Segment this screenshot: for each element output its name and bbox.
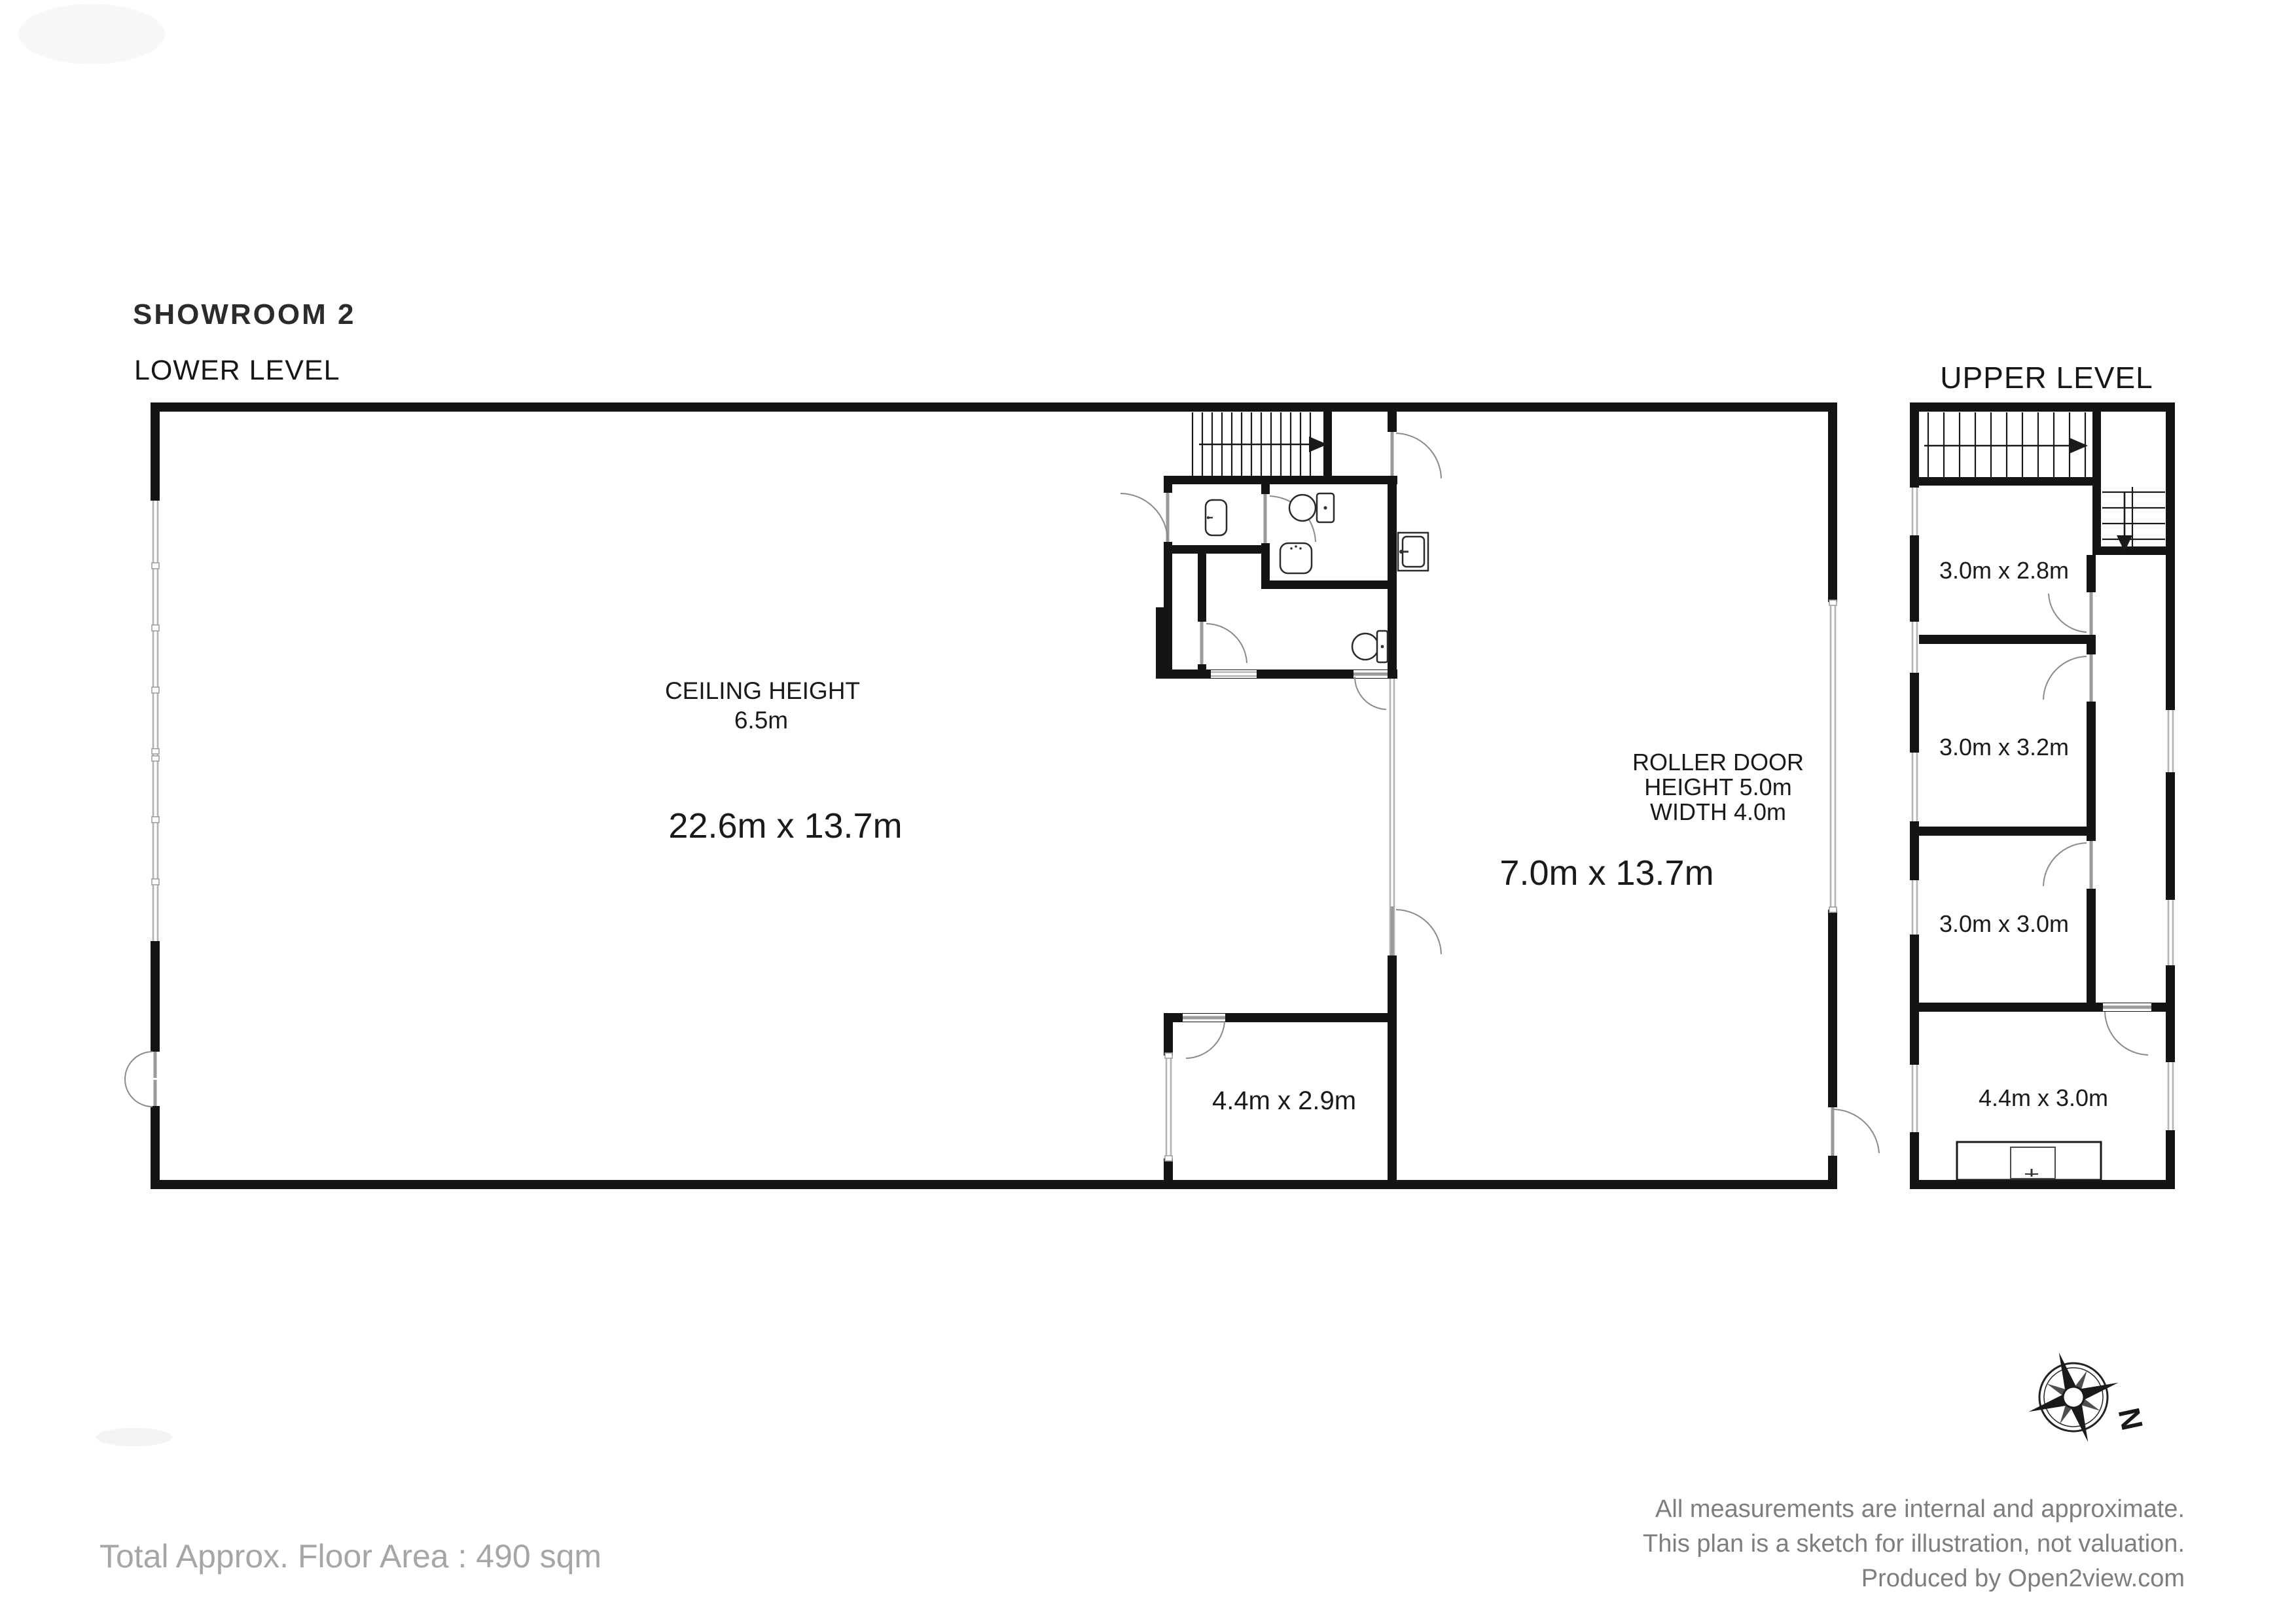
lower-level-label: LOWER LEVEL [134,355,340,386]
wall-sink-icon [1398,533,1428,571]
upper-outer-walls [1910,402,2175,1189]
floor-plan-sheet: SHOWROOM 2 LOWER LEVEL UPPER LEVEL [0,0,2296,1623]
ceiling-height-label: CEILING HEIGHT [665,677,860,704]
faded-logo-blob [18,4,165,64]
amenities-block [1121,484,1428,709]
upper-windows [1910,488,2174,1132]
upper-level-label: UPPER LEVEL [1940,361,2153,395]
bay-dimensions: 7.0m x 13.7m [1499,853,1713,893]
lower-staircase [1164,411,1397,484]
toilet-icon [1289,493,1334,522]
compass-icon: N [2014,1338,2149,1456]
stair-down-arrow [2117,492,2132,552]
lower-outer-walls [151,402,1837,1189]
lower-level-plan: CEILING HEIGHT 6.5m 22.6m x 13.7m ROLLER… [125,402,1879,1189]
dividing-wall [1388,411,1441,1180]
stair-direction-arrow [1199,437,1327,452]
disclaimer-line-3: Produced by Open2view.com [1861,1565,2185,1592]
faded-smudge [96,1428,172,1446]
upper-level-plan: 3.0m x 2.8m 3.0m x 3.2m 3.0m x 3.0m 4.4m… [1910,402,2175,1189]
lower-left-window [151,501,159,941]
disclaimer-line-2: This plan is a sketch for illustration, … [1643,1530,2185,1558]
stair-treads [1928,412,2085,477]
basin-icon [1206,500,1227,535]
lower-double-door [125,1052,155,1107]
disclaimer-line-1: All measurements are internal and approx… [1655,1495,2185,1523]
total-floor-area: Total Approx. Floor Area : 490 sqm [99,1538,601,1575]
roller-door-label: ROLLER DOOR [1632,749,1804,776]
lower-right-door [1833,1107,1879,1156]
kitchen-bench [1957,1142,2101,1180]
store-room-dimensions: 4.4m x 2.9m [1212,1086,1356,1115]
upper-room-3-dimensions: 3.0m x 3.0m [1939,910,2069,937]
compass-north-label: N [2112,1405,2150,1433]
page-title: SHOWROOM 2 [133,298,355,330]
roller-door-width: WIDTH 4.0m [1650,798,1786,825]
upper-room-2-dimensions: 3.0m x 3.2m [1939,734,2069,760]
stair-return-flight [2102,487,2165,552]
basin-icon [1280,543,1312,573]
upper-room-4-dimensions: 4.4m x 3.0m [1979,1084,2108,1111]
upper-staircase [1919,412,2175,555]
showroom-dimensions: 22.6m x 13.7m [668,806,902,846]
upper-room-1-dimensions: 3.0m x 2.8m [1939,557,2069,584]
toilet-icon [1352,631,1388,662]
upper-interior-walls [1919,555,2175,1012]
roller-door-height: HEIGHT 5.0m [1644,774,1791,800]
upper-doors [2043,592,2151,1055]
roller-door [1829,600,1837,912]
ceiling-height-value: 6.5m [734,707,788,734]
